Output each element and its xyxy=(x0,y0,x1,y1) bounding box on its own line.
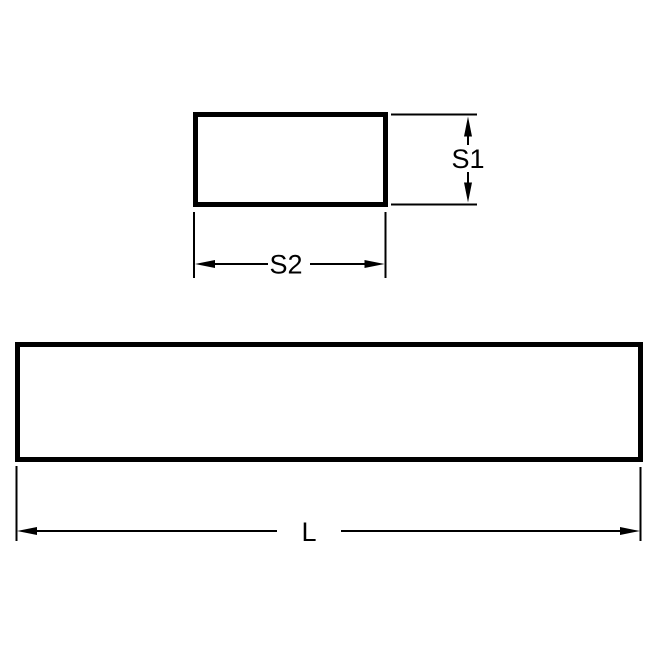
l-dimension: L xyxy=(17,466,641,547)
l-arrowhead-right-icon xyxy=(620,527,640,535)
drawing-svg: S1 S2 L xyxy=(0,0,670,670)
l-label: L xyxy=(301,517,316,547)
side-view: L xyxy=(17,345,641,548)
s1-dimension: S1 xyxy=(391,115,485,205)
s1-arrowhead-down-icon xyxy=(464,183,472,203)
s1-arrowhead-up-icon xyxy=(464,117,472,137)
s2-dimension: S2 xyxy=(194,212,386,280)
s2-arrowhead-right-icon xyxy=(365,260,385,268)
side-view-rectangle xyxy=(18,345,641,460)
cross-section-view: S1 S2 xyxy=(194,115,485,280)
s2-label: S2 xyxy=(269,250,302,280)
s1-label: S1 xyxy=(451,144,484,174)
s2-arrowhead-left-icon xyxy=(195,260,215,268)
l-arrowhead-left-icon xyxy=(17,527,37,535)
cross-section-rectangle xyxy=(196,115,386,205)
technical-drawing: S1 S2 L xyxy=(0,0,670,670)
